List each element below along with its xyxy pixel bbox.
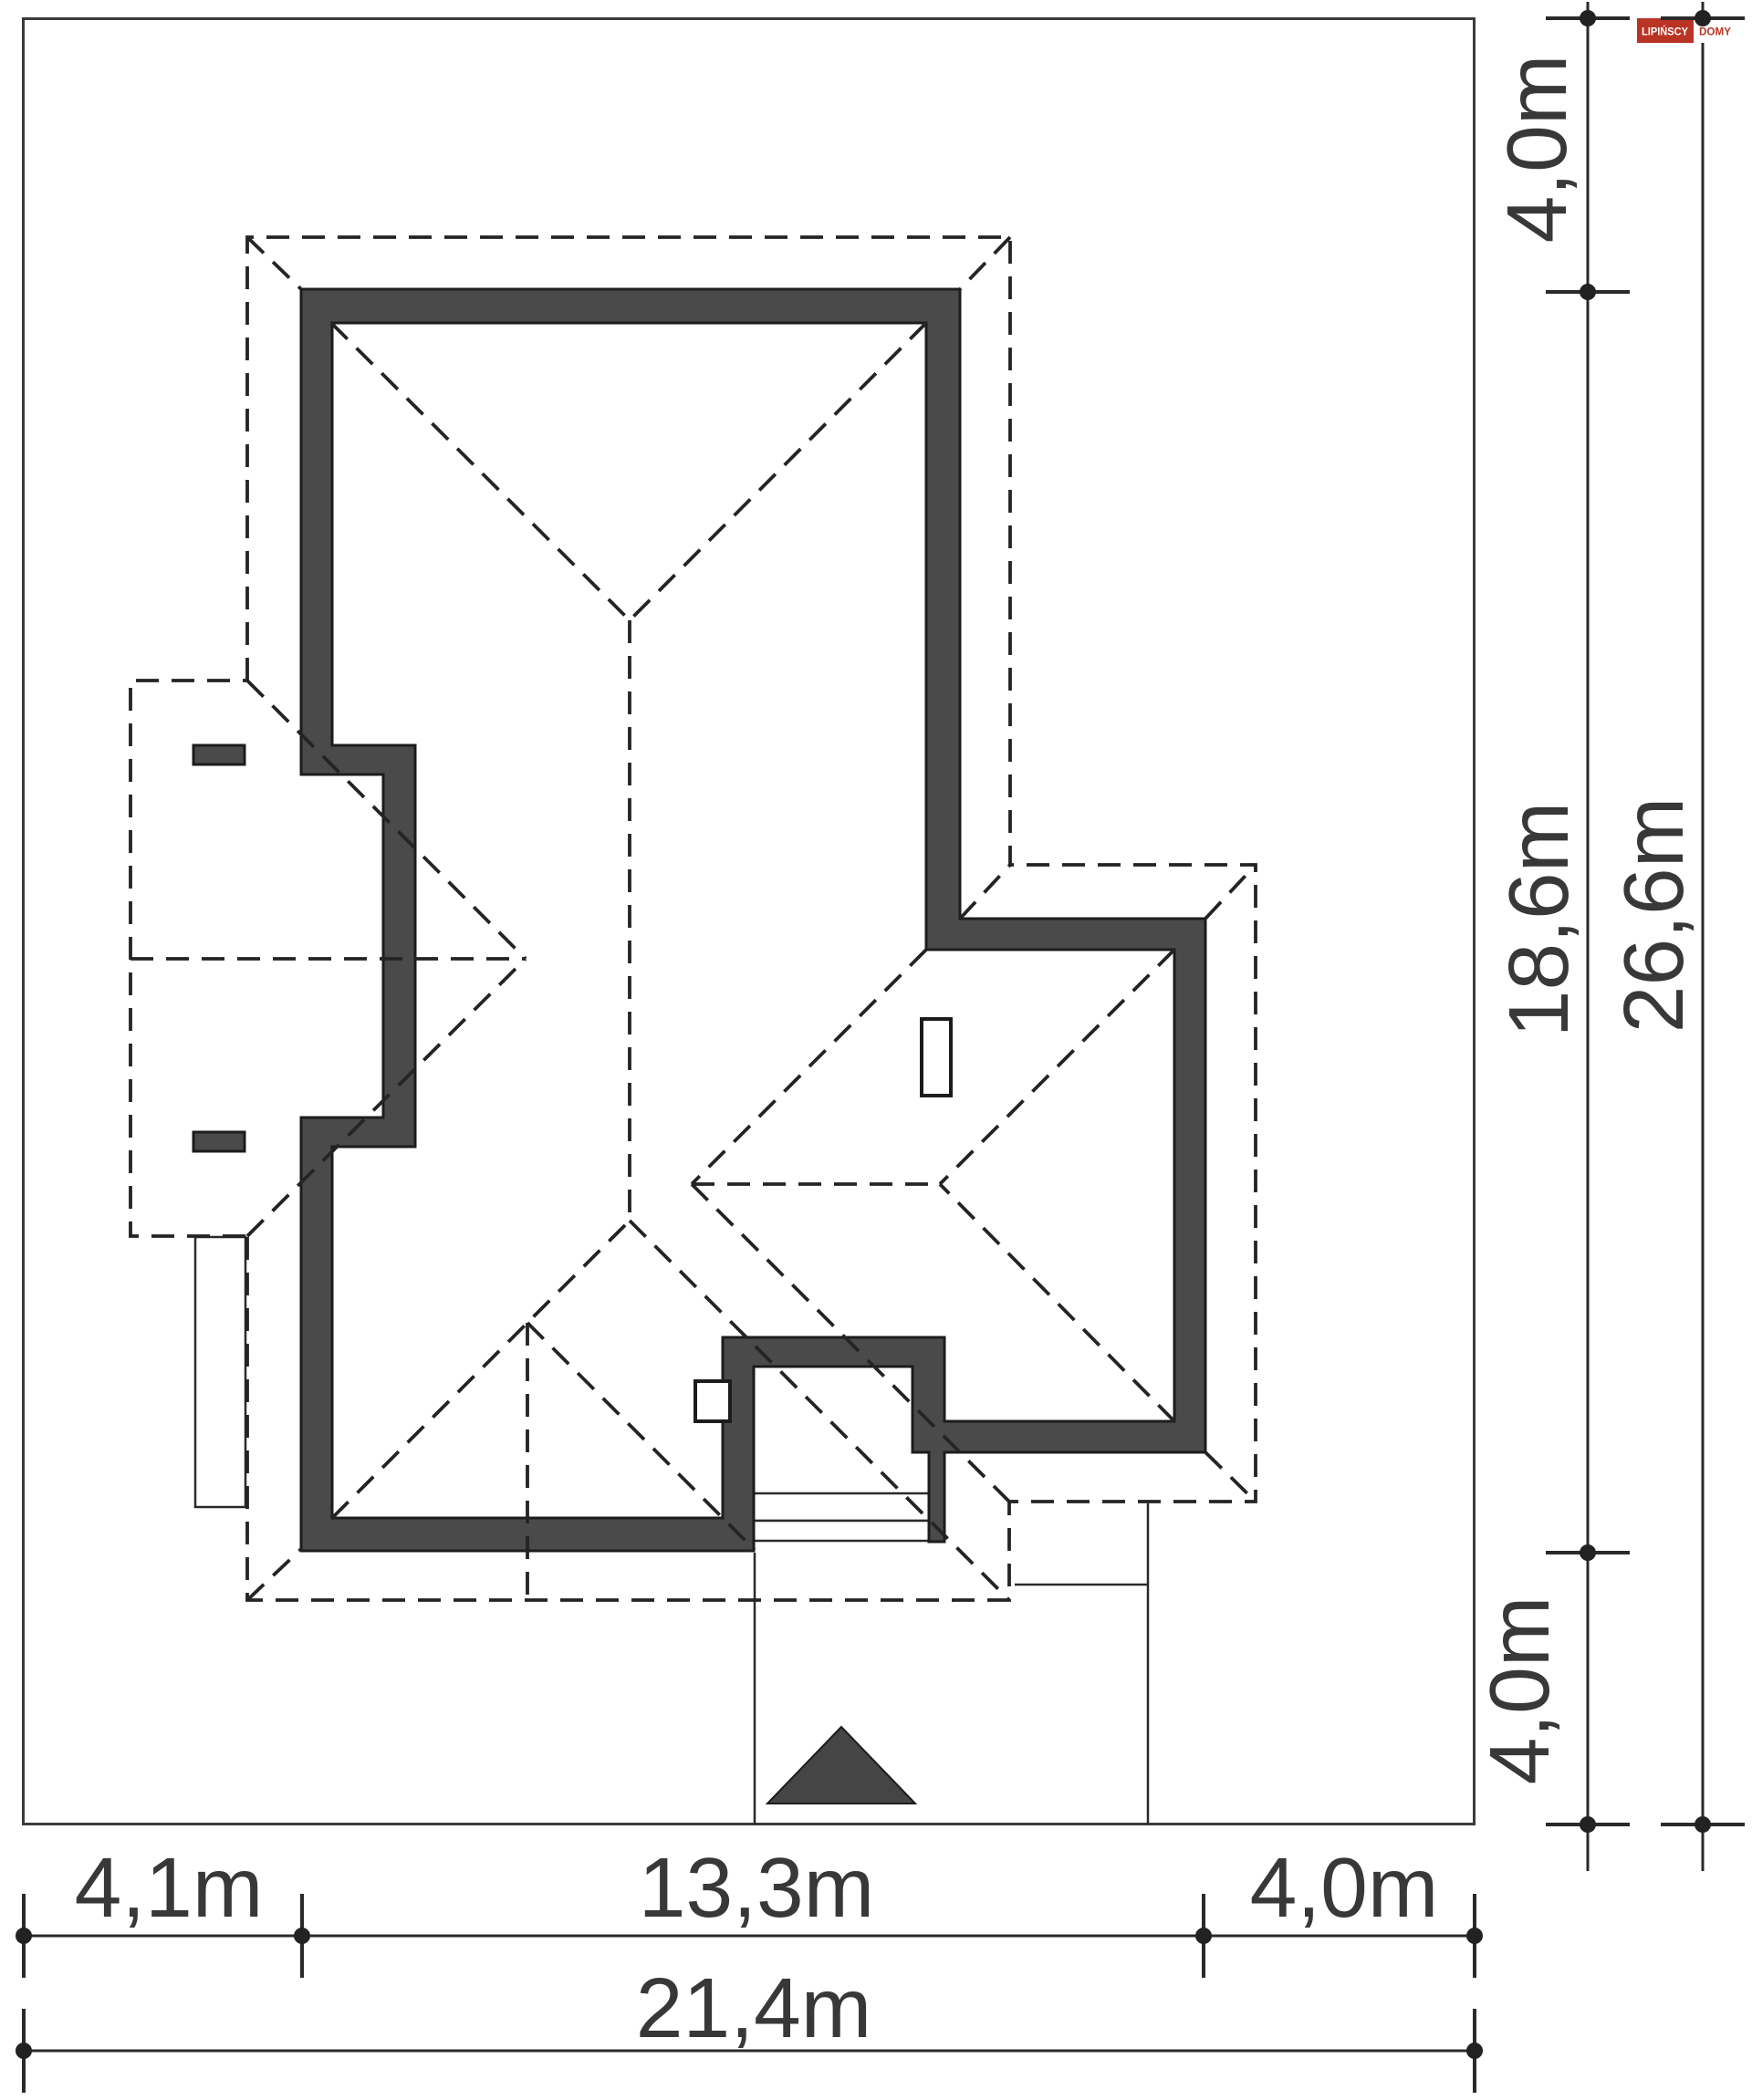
svg-text:DOMY: DOMY (1699, 26, 1731, 38)
svg-text:4,0m: 4,0m (1250, 1840, 1439, 1935)
svg-text:21,4m: 21,4m (636, 1960, 871, 2055)
svg-text:26,6m: 26,6m (1606, 797, 1701, 1033)
svg-text:4,0m: 4,0m (1489, 55, 1584, 244)
svg-text:LIPIŃSCY: LIPIŃSCY (1642, 25, 1688, 38)
svg-text:18,6m: 18,6m (1491, 802, 1586, 1037)
svg-text:4,0m: 4,0m (1472, 1596, 1567, 1785)
svg-text:13,3m: 13,3m (639, 1840, 874, 1935)
svg-text:4,1m: 4,1m (75, 1840, 264, 1935)
